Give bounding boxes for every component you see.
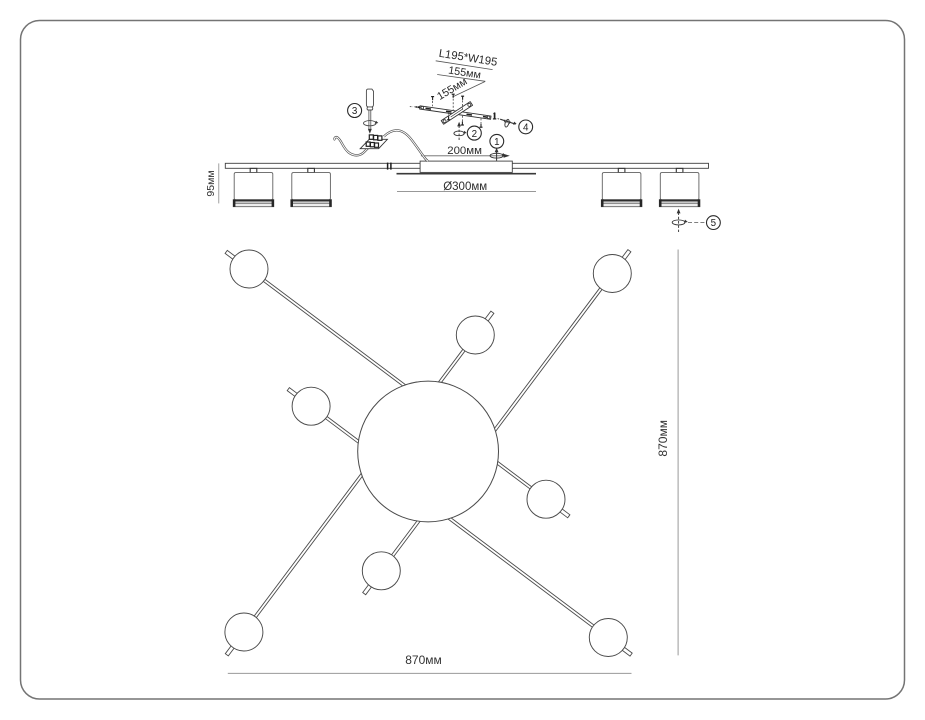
svg-text:870мм: 870мм — [405, 653, 442, 667]
svg-text:200мм: 200мм — [447, 145, 482, 157]
svg-text:155мм: 155мм — [435, 76, 469, 103]
svg-text:5: 5 — [711, 218, 717, 229]
svg-text:3: 3 — [352, 106, 358, 117]
svg-text:4: 4 — [523, 123, 529, 134]
svg-text:870мм: 870мм — [656, 420, 670, 457]
svg-text:1: 1 — [494, 137, 499, 148]
svg-text:Ø300мм: Ø300мм — [443, 181, 487, 193]
svg-text:2: 2 — [472, 129, 477, 140]
svg-text:95мм: 95мм — [205, 170, 217, 196]
